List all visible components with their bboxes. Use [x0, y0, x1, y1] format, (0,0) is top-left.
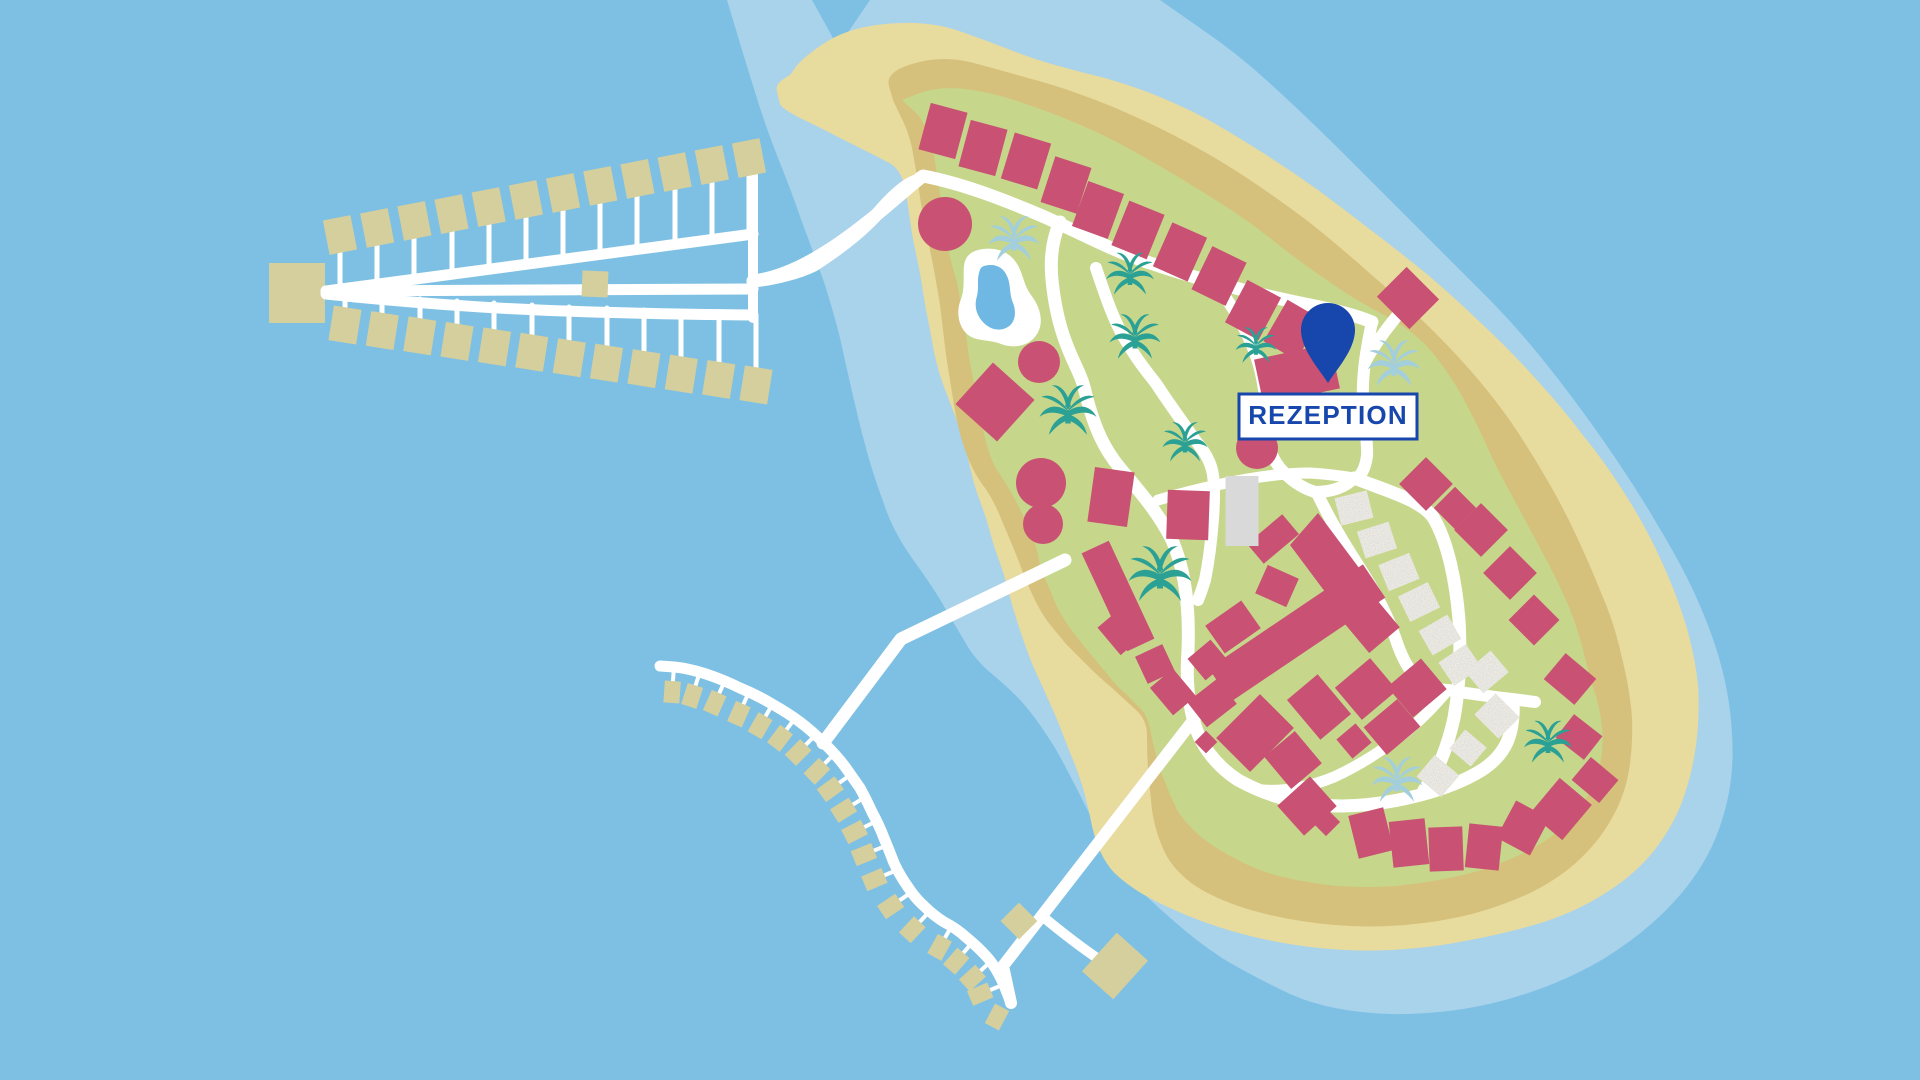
svg-text:REZEPTION: REZEPTION	[1248, 400, 1408, 430]
